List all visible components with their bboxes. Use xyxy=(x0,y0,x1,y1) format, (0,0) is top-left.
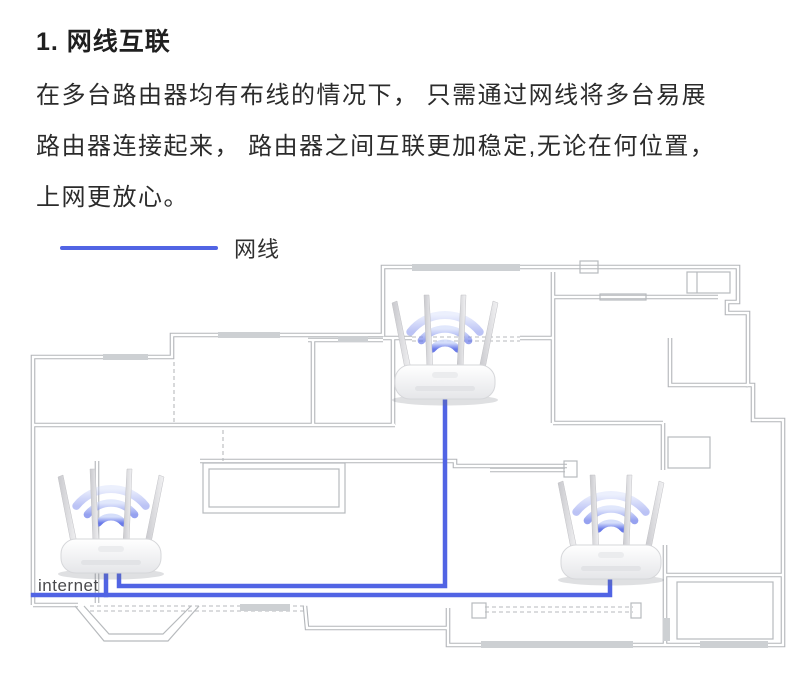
router-internet xyxy=(58,469,164,580)
walls xyxy=(33,261,783,648)
router-top-room xyxy=(392,295,498,406)
router-bottom-right xyxy=(558,475,664,586)
internet-label: internet xyxy=(38,576,99,595)
floor-plan: internet xyxy=(0,0,802,698)
page: 1. 网线互联 在多台路由器均有布线的情况下， 只需通过网线将多台易展 路由器连… xyxy=(0,0,802,698)
